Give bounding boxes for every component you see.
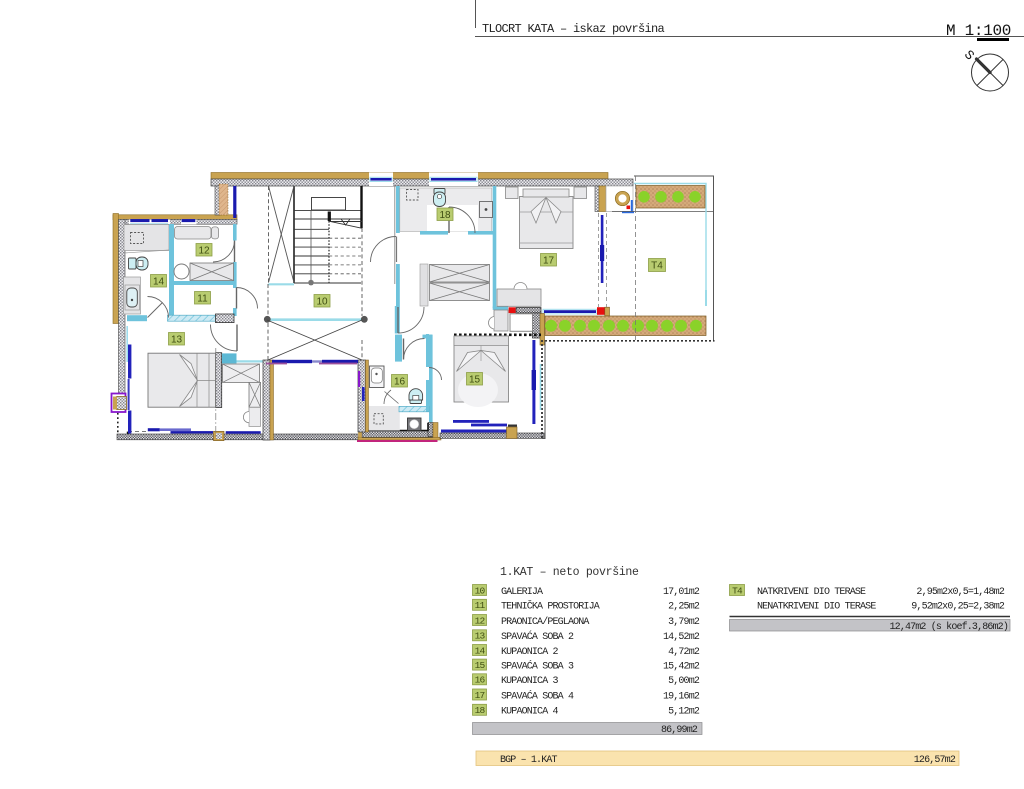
svg-text:5,12m2: 5,12m2 — [668, 707, 700, 718]
svg-text:15: 15 — [469, 374, 481, 385]
svg-text:TLOCRT KATA – iskaz površina: TLOCRT KATA – iskaz površina — [482, 22, 665, 36]
svg-text:KUPAONICA 4: KUPAONICA 4 — [501, 707, 559, 718]
svg-text:19,16m2: 19,16m2 — [663, 691, 700, 702]
svg-text:11: 11 — [197, 293, 208, 304]
svg-text:10: 10 — [475, 585, 486, 596]
svg-text:14: 14 — [475, 645, 486, 656]
svg-text:KUPAONICA 3: KUPAONICA 3 — [501, 676, 559, 687]
svg-text:16: 16 — [394, 376, 406, 387]
svg-text:5,00m2: 5,00m2 — [668, 676, 700, 687]
svg-text:126,57m2: 126,57m2 — [914, 755, 956, 766]
svg-text:T4: T4 — [651, 261, 663, 272]
svg-text:13: 13 — [475, 631, 486, 642]
svg-text:18: 18 — [475, 705, 486, 716]
svg-text:SPAVAĆA SOBA 3: SPAVAĆA SOBA 3 — [501, 658, 574, 672]
svg-text:9,52m2x0,25=2,38m2: 9,52m2x0,25=2,38m2 — [911, 602, 1005, 613]
svg-text:BGP – 1.KAT: BGP – 1.KAT — [500, 755, 558, 766]
svg-text:4,72m2: 4,72m2 — [668, 647, 700, 658]
svg-text:2,25m2: 2,25m2 — [668, 602, 700, 613]
svg-text:1.KAT – neto površine: 1.KAT – neto površine — [500, 566, 639, 579]
svg-text:10: 10 — [316, 296, 328, 307]
svg-text:GALERIJA: GALERIJA — [501, 587, 543, 598]
svg-text:M 1:100: M 1:100 — [946, 22, 1011, 40]
svg-text:2,95m2x0,5=1,48m2: 2,95m2x0,5=1,48m2 — [916, 587, 1004, 598]
svg-text:12,47m2 (s koef.3,86m2): 12,47m2 (s koef.3,86m2) — [890, 621, 1008, 633]
svg-text:PRAONICA/PEGLAONA: PRAONICA/PEGLAONA — [501, 616, 589, 628]
svg-text:17: 17 — [475, 690, 485, 701]
svg-text:TEHNIČKA PROSTORIJA: TEHNIČKA PROSTORIJA — [501, 599, 600, 613]
svg-text:KUPAONICA 2: KUPAONICA 2 — [501, 647, 559, 658]
svg-text:17,01m2: 17,01m2 — [663, 587, 700, 598]
svg-text:14,52m2: 14,52m2 — [663, 632, 700, 643]
svg-text:16: 16 — [475, 675, 486, 686]
svg-text:15: 15 — [475, 660, 486, 671]
svg-text:15,42m2: 15,42m2 — [663, 661, 700, 672]
svg-text:86,99m2: 86,99m2 — [661, 725, 698, 736]
svg-text:SPAVAĆA SOBA 4: SPAVAĆA SOBA 4 — [501, 688, 574, 702]
svg-text:T4: T4 — [732, 585, 743, 596]
svg-text:3,79m2: 3,79m2 — [668, 617, 700, 628]
svg-text:SPAVAĆA SOBA 2: SPAVAĆA SOBA 2 — [501, 629, 574, 643]
svg-text:14: 14 — [153, 276, 165, 287]
svg-text:NENATKRIVENI DIO TERASE: NENATKRIVENI DIO TERASE — [757, 602, 876, 613]
svg-text:NATKRIVENI DIO TERASE: NATKRIVENI DIO TERASE — [757, 587, 866, 598]
svg-text:17: 17 — [543, 255, 555, 266]
svg-text:13: 13 — [171, 334, 183, 345]
svg-text:12: 12 — [198, 245, 210, 256]
svg-text:12: 12 — [475, 615, 486, 626]
svg-text:18: 18 — [439, 210, 451, 221]
svg-text:11: 11 — [475, 600, 486, 611]
